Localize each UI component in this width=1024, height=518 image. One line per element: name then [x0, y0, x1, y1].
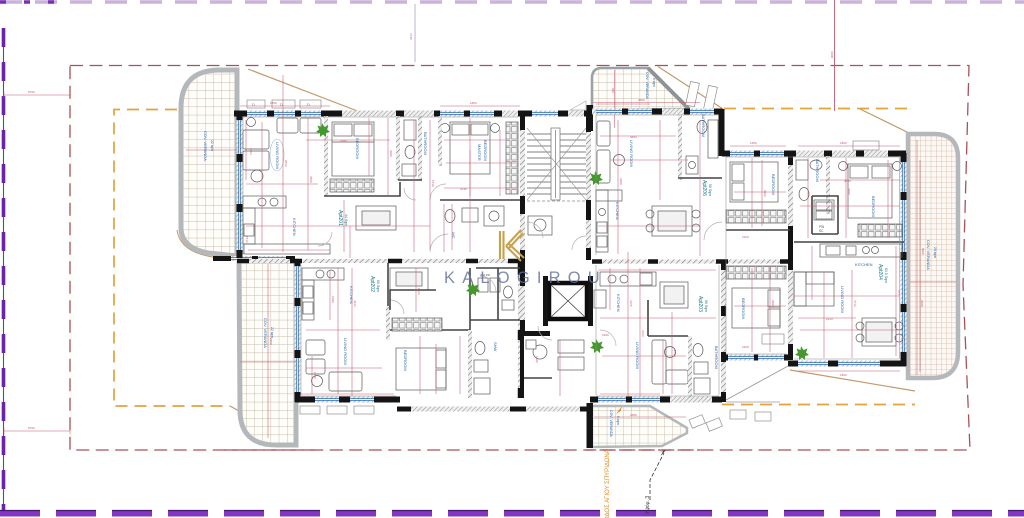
svg-text:1500: 1500 [750, 141, 757, 145]
svg-text:Apt204: Apt204 [877, 264, 883, 280]
svg-text:COV. VERANDA: COV. VERANDA [263, 318, 268, 348]
svg-text:KITCHEN: KITCHEN [616, 294, 621, 312]
svg-text:3664: 3664 [630, 135, 637, 139]
svg-text:5706: 5706 [28, 426, 35, 430]
svg-text:1600: 1600 [535, 356, 539, 363]
svg-text:2400: 2400 [920, 300, 924, 307]
svg-text:2962: 2962 [771, 300, 775, 307]
svg-text:MASTER: MASTER [477, 144, 482, 161]
svg-text:4213: 4213 [409, 33, 413, 40]
svg-text:2100: 2100 [742, 235, 749, 239]
svg-text:2800: 2800 [269, 338, 273, 345]
svg-text:2580: 2580 [340, 139, 347, 143]
svg-text:Apt203: Apt203 [697, 296, 703, 312]
svg-text:8000: 8000 [921, 248, 925, 255]
svg-text:3000: 3000 [847, 188, 851, 195]
svg-text:50 Sqm: 50 Sqm [708, 184, 712, 196]
svg-text:22 sqm: 22 sqm [210, 140, 214, 151]
svg-text:960: 960 [611, 88, 615, 93]
svg-text:5706: 5706 [28, 90, 35, 94]
svg-text:COV. VERANDA: COV. VERANDA [609, 410, 613, 437]
svg-text:KALOGIROU: KALOGIROU [444, 269, 607, 287]
svg-text:2754: 2754 [673, 350, 677, 357]
svg-text:ΟΔΟΣ ΑΓΙΟΥ ΣΠΥΡΙΔΩΝΑ: ΟΔΟΣ ΑΓΙΟΥ ΣΠΥΡΙΔΩΝΑ [605, 449, 611, 518]
svg-text:BATHROOM: BATHROOM [815, 159, 820, 182]
svg-text:4213: 4213 [353, 300, 357, 307]
svg-text:44 Sqm: 44 Sqm [344, 214, 348, 226]
svg-text:2235: 2235 [460, 187, 467, 191]
svg-text:3600: 3600 [619, 178, 623, 185]
svg-text:3313: 3313 [641, 330, 645, 337]
svg-text:2064: 2064 [249, 148, 253, 155]
svg-text:BEDROOM: BEDROOM [871, 196, 876, 217]
svg-text:LIVING ROOM: LIVING ROOM [275, 142, 280, 169]
svg-text:1800: 1800 [470, 101, 477, 105]
svg-text:1206: 1206 [313, 372, 317, 379]
svg-text:Apt206: Apt206 [701, 180, 707, 196]
svg-text:3000: 3000 [389, 150, 393, 157]
svg-text:1664: 1664 [417, 288, 421, 295]
svg-text:BATHROOM: BATHROOM [701, 114, 706, 137]
svg-text:2513: 2513 [284, 160, 288, 167]
svg-text:1800: 1800 [270, 101, 277, 105]
svg-text:3606: 3606 [638, 98, 645, 102]
svg-text:BEDROOM: BEDROOM [771, 174, 776, 195]
svg-text:1519: 1519 [431, 180, 435, 187]
svg-text:KITCHEN: KITCHEN [292, 218, 297, 236]
svg-text:BEDROOM: BEDROOM [403, 350, 408, 371]
svg-text:BEDROOM: BEDROOM [741, 298, 746, 319]
svg-text:1800: 1800 [840, 141, 847, 145]
svg-text:3115: 3115 [629, 300, 633, 307]
svg-text:1800: 1800 [840, 373, 847, 377]
svg-text:1890: 1890 [331, 296, 335, 303]
svg-text:Apt201: Apt201 [337, 210, 343, 226]
svg-text:LIVING ROOM: LIVING ROOM [840, 286, 845, 313]
svg-text:BATHROOM: BATHROOM [423, 132, 428, 155]
svg-text:2313: 2313 [826, 317, 833, 321]
svg-text:60 Sqm: 60 Sqm [376, 280, 380, 292]
svg-text:KITCHEN: KITCHEN [615, 202, 620, 220]
svg-text:Υψόμ. 3: Υψόμ. 3 [644, 496, 651, 514]
svg-text:LIVING ROOM: LIVING ROOM [629, 140, 634, 167]
svg-text:BATHROOM: BATHROOM [714, 346, 719, 369]
svg-text:BEDROOM: BEDROOM [483, 140, 488, 161]
svg-text:6 sqm: 6 sqm [616, 416, 620, 425]
svg-text:COV. VERANDA: COV. VERANDA [203, 131, 208, 161]
svg-text:Apt202: Apt202 [369, 276, 375, 292]
svg-text:2606: 2606 [630, 413, 637, 417]
svg-text:1600: 1600 [602, 333, 609, 337]
svg-text:SHW: SHW [493, 342, 498, 352]
svg-text:61.5 Sqm: 61.5 Sqm [884, 268, 888, 283]
svg-text:3713: 3713 [897, 290, 901, 297]
svg-text:9000: 9000 [830, 51, 834, 58]
svg-text:COV. VERANDA: COV. VERANDA [645, 72, 649, 99]
svg-text:6 sqm: 6 sqm [652, 78, 656, 87]
svg-text:LIVING ROOM: LIVING ROOM [635, 342, 640, 369]
svg-text:2962: 2962 [763, 190, 767, 197]
svg-text:3055: 3055 [844, 179, 851, 183]
svg-text:COV. VERANDA: COV. VERANDA [926, 240, 931, 270]
svg-text:SC: SC [819, 229, 824, 233]
svg-text:3713: 3713 [853, 300, 857, 307]
svg-text:2100: 2100 [742, 345, 749, 349]
svg-text:LIVING ROOM: LIVING ROOM [343, 338, 348, 365]
svg-text:22 sqm: 22 sqm [270, 327, 274, 338]
svg-text:24 sqm: 24 sqm [933, 247, 937, 258]
svg-text:KITCHEN: KITCHEN [855, 262, 873, 267]
svg-text:3500: 3500 [309, 176, 313, 183]
svg-text:1513: 1513 [245, 236, 249, 243]
svg-text:56 Sqm: 56 Sqm [704, 300, 708, 312]
svg-text:BEDROOM: BEDROOM [355, 138, 360, 159]
